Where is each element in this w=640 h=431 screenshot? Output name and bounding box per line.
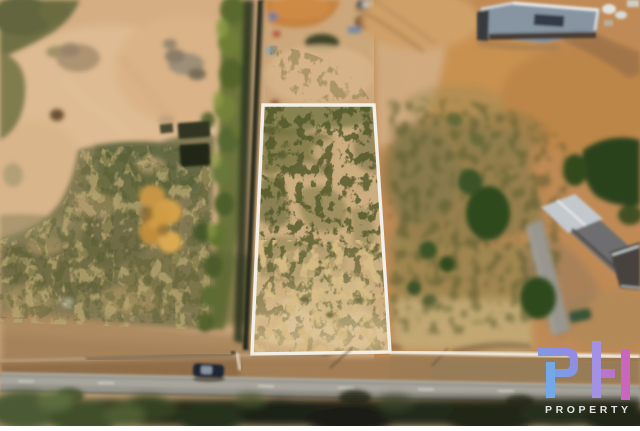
svg-text:PROPERTY: PROPERTY xyxy=(545,404,632,416)
